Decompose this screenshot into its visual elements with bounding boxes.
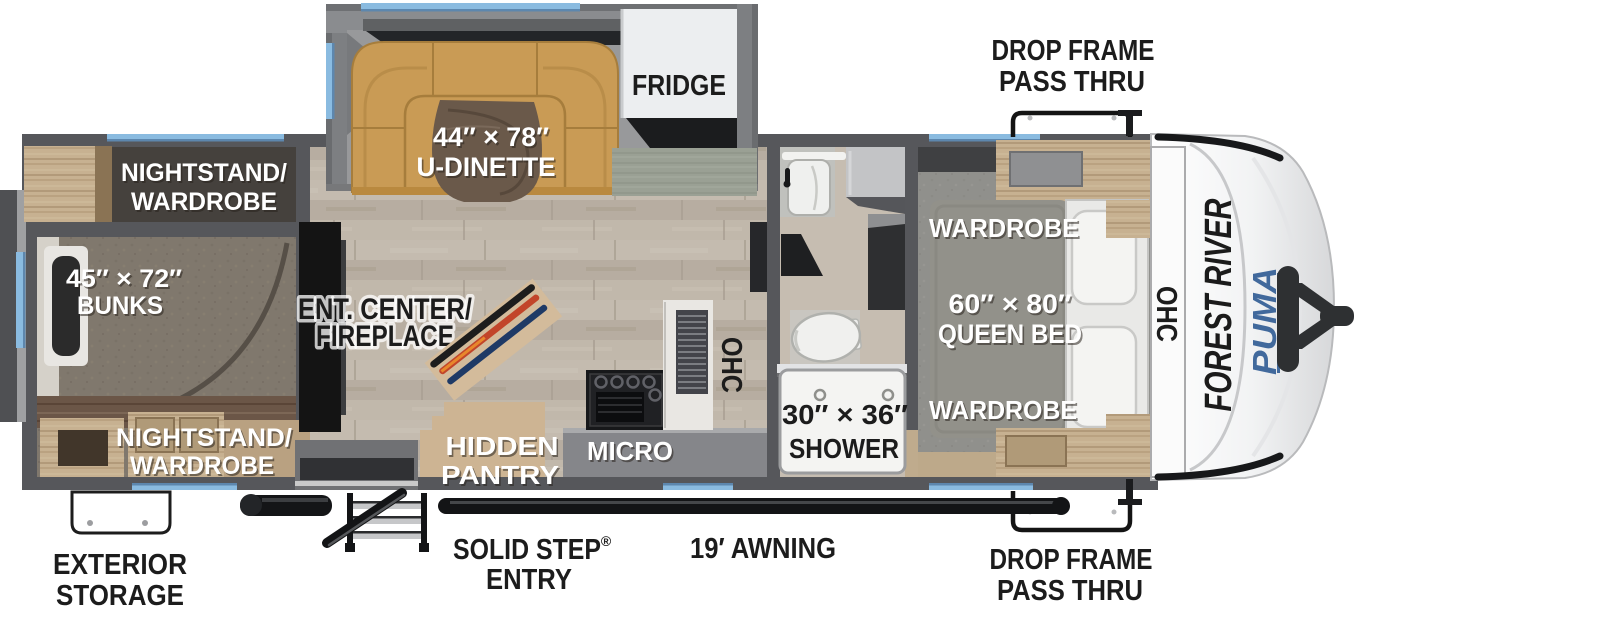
svg-text:NIGHTSTAND/: NIGHTSTAND/ (116, 424, 292, 452)
svg-text:FRIDGE: FRIDGE (632, 70, 726, 102)
svg-text:OHC: OHC (715, 337, 747, 393)
svg-text:NIGHTSTAND/: NIGHTSTAND/ (121, 159, 287, 187)
svg-text:OHC: OHC (1150, 286, 1182, 342)
svg-text:DROP FRAME: DROP FRAME (990, 544, 1153, 576)
svg-text:WARDROBE: WARDROBE (929, 395, 1077, 425)
svg-text:EXTERIOR: EXTERIOR (53, 549, 187, 581)
svg-text:19′ AWNING: 19′ AWNING (690, 533, 836, 565)
svg-text:FOREST RIVER: FOREST RIVER (1198, 198, 1240, 411)
svg-text:44″ × 78″: 44″ × 78″ (433, 122, 549, 152)
svg-text:30″ × 36″: 30″ × 36″ (782, 399, 908, 430)
svg-text:DROP FRAME: DROP FRAME (992, 35, 1155, 67)
svg-text:PASS THRU: PASS THRU (997, 575, 1143, 607)
svg-text:BUNKS: BUNKS (77, 292, 163, 320)
svg-text:MICRO: MICRO (587, 436, 673, 466)
svg-text:QUEEN BED: QUEEN BED (938, 319, 1082, 349)
svg-text:ENTRY: ENTRY (486, 564, 572, 596)
svg-text:SHOWER: SHOWER (789, 433, 899, 464)
svg-text:STORAGE: STORAGE (56, 580, 184, 612)
svg-text:SOLID STEP: SOLID STEP (453, 534, 601, 566)
svg-text:FIREPLACE: FIREPLACE (316, 320, 454, 353)
svg-text:WARDROBE: WARDROBE (131, 188, 277, 216)
svg-text:PASS THRU: PASS THRU (999, 66, 1145, 98)
svg-text:U-DINETTE: U-DINETTE (417, 152, 556, 182)
svg-text:®: ® (601, 533, 612, 549)
svg-text:PANTRY: PANTRY (441, 460, 559, 490)
svg-text:WARDROBE: WARDROBE (130, 452, 274, 480)
svg-text:WARDROBE: WARDROBE (929, 213, 1079, 243)
svg-text:60″ × 80″: 60″ × 80″ (949, 289, 1072, 319)
svg-text:HIDDEN: HIDDEN (446, 431, 559, 461)
svg-text:45″ × 72″: 45″ × 72″ (66, 265, 182, 293)
